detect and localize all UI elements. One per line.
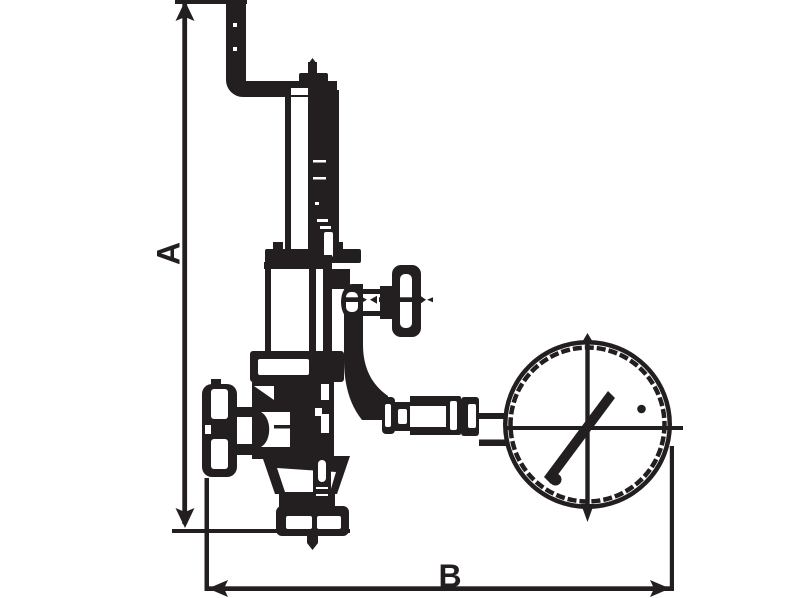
svg-text:A: A: [151, 242, 187, 265]
svg-text:B: B: [438, 558, 461, 594]
